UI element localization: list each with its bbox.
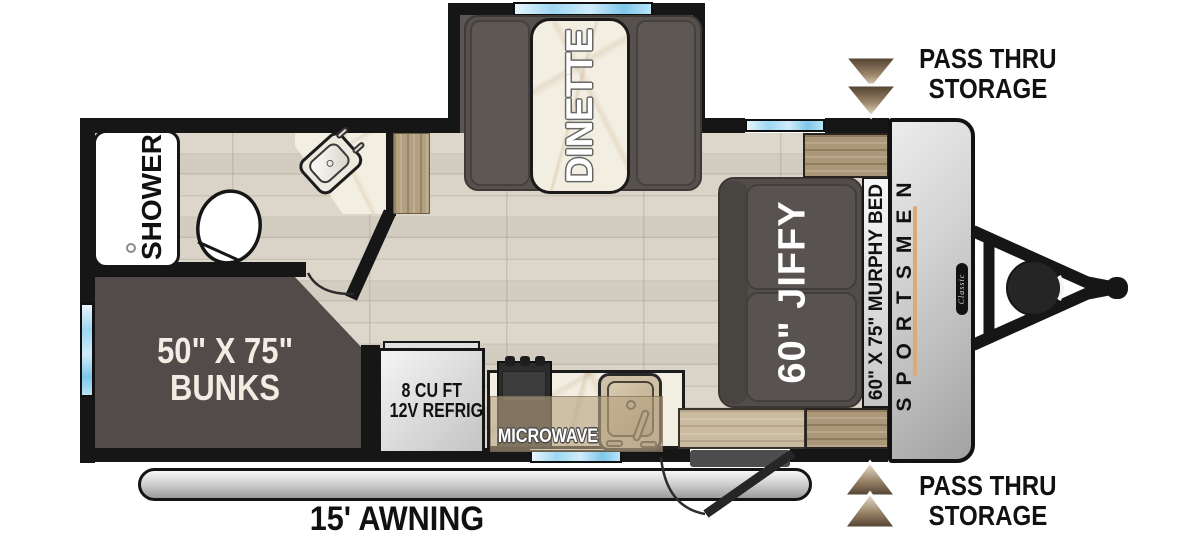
wall-top-right [825,118,889,133]
stove-knob-3 [535,356,545,366]
wall-top-mid [705,118,745,133]
slideout-wall-left [448,3,460,133]
stove-knob-2 [520,356,530,366]
cabinet-bottom-light [678,408,806,449]
sofa-backrest [720,181,748,404]
entry-door-sill [690,450,790,467]
bathroom-cabinet [393,133,430,214]
passthru-top-label: PASS THRU STORAGE [893,44,1083,104]
stove-knob-1 [505,356,515,366]
dinette-bench-right [636,20,696,186]
passthru-bottom-line1: PASS THRU [919,471,1056,501]
series-badge-label: Classic [956,263,968,315]
refrigerator-label: 8 CU FT 12V REFRIG [378,381,485,421]
passthru-top-line2: STORAGE [929,74,1048,104]
bunks-label-line1: 50" X 75" [157,332,293,369]
bunk-window-icon [80,303,94,397]
passthru-bottom-arrows-icon [844,462,896,528]
propane-tank-icon [1007,261,1061,315]
refrigerator-label-line2: 12V REFRIG [390,401,483,421]
cabinet-bottom-dark [805,408,889,449]
bunks-label-line2: BUNKS [170,369,280,406]
kitchen-top-window-icon [745,119,825,132]
microwave-label-text: MICROWAVE [498,426,598,448]
sofa-label: 60" JIFFY [772,200,815,383]
dinette-bench-left [470,20,530,186]
bunks-label: 50" X 75" BUNKS [100,332,350,406]
microwave-label: MICROWAVE [488,426,608,448]
dinette-window-icon [513,2,653,16]
cap-accent-stripe [913,206,917,376]
passthru-top-arrows-icon [845,57,897,117]
cabinet-top-right [803,133,889,178]
murphy-bed-label: 60" X 75" MURPHY BED [866,184,888,400]
shower-drain-icon [126,243,136,253]
series-badge: Classic [956,263,968,315]
awning-label-text: 15' AWNING [310,502,484,538]
awning-bar [138,468,812,501]
shower-label: SHOWER [136,134,168,260]
wall-bottom-right [790,448,888,462]
passthru-bottom-line2: STORAGE [929,501,1048,531]
passthru-top-line1: PASS THRU [919,44,1056,74]
hitch-icon [973,231,1128,345]
floorplan-canvas: DINETTE SHOWER 50" X 75" BUNKS 8 CU FT 1… [0,0,1200,542]
refrigerator-label-line1: 8 CU FT [401,381,461,401]
awning-label: 15' AWNING [277,502,517,538]
passthru-bottom-label: PASS THRU STORAGE [893,471,1083,531]
dinette-label: DINETTE [559,29,601,184]
